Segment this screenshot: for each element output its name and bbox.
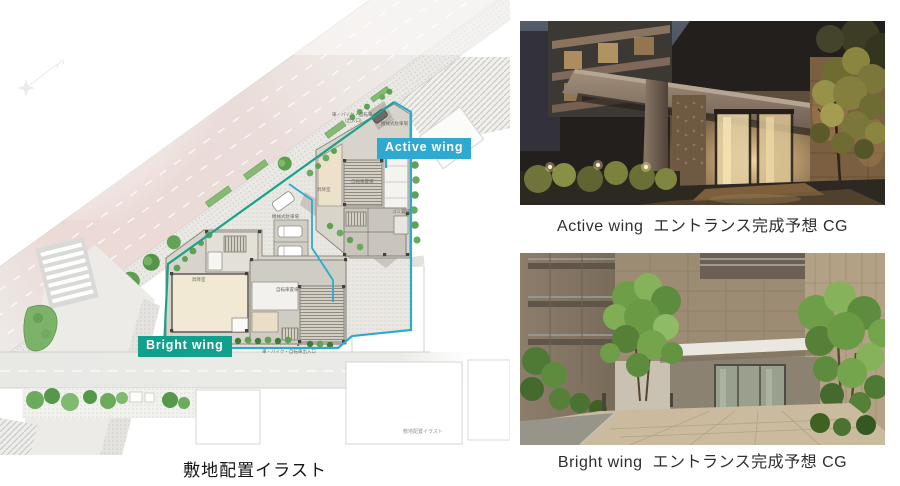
bright-wing-photo-caption: Bright wing エントランス完成予想 CG	[520, 448, 885, 472]
page: N 車・バイク・自転車(出入口)機械式駐車場自転車置場昇降室ゴミ置場機械式駐車場…	[0, 0, 900, 486]
plan-tiny-label: 自転車置場	[276, 288, 299, 293]
plan-tiny-label: ▲	[296, 343, 300, 348]
car-icon	[278, 246, 302, 257]
active-wing-badge: Active wing	[377, 138, 471, 159]
site-plan-illustration: N 車・バイク・自転車(出入口)機械式駐車場自転車置場昇降室ゴミ置場機械式駐車場…	[0, 0, 510, 455]
plan-tiny-label: 車・バイク・自転車出入口	[262, 350, 316, 355]
plan-tiny-label: 機械式駐車場	[381, 122, 408, 127]
plan-tiny-label: 昇降室	[317, 188, 331, 193]
plan-tiny-label: 機械式駐車場	[272, 215, 299, 220]
plan-tiny-label: (出入口)	[345, 119, 362, 124]
svg-text:N: N	[60, 60, 64, 66]
compass-icon: N	[17, 60, 64, 97]
bright-wing-entrance-photo	[520, 253, 885, 445]
site-plan-caption: 敷地配置イラスト	[0, 456, 510, 481]
active-wing-entrance-photo	[520, 21, 885, 205]
active-wing-leader	[385, 157, 387, 168]
car-icon	[278, 226, 302, 237]
plan-tiny-label: 車・バイク・自転車	[332, 113, 372, 118]
active-wing-photo-caption: Active wing エントランス完成予想 CG	[520, 212, 885, 236]
site-plan-drawing: N	[0, 0, 510, 455]
plan-tiny-label: ゴミ置場	[392, 210, 410, 215]
plan-watermark: 敷地配置イラスト	[403, 427, 443, 435]
plan-tiny-label: 自転車置場	[351, 180, 374, 185]
bright-wing-badge: Bright wing	[138, 336, 232, 357]
plan-tiny-label: 昇降室	[192, 278, 206, 283]
